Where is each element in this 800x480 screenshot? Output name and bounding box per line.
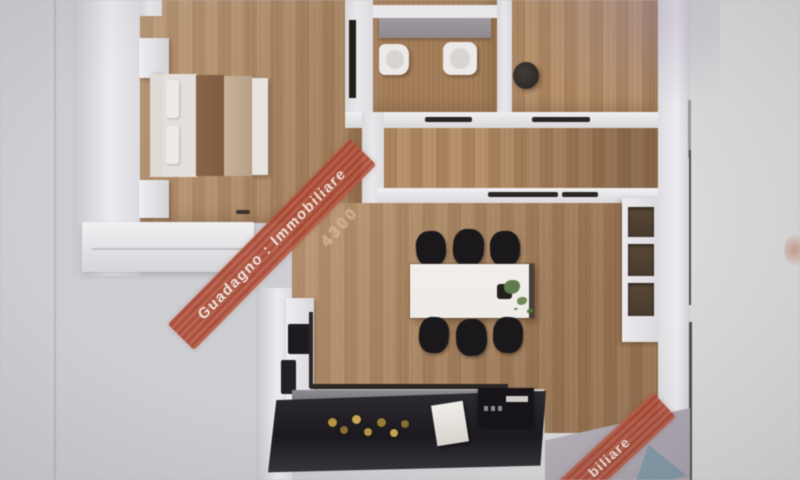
toilet-seat xyxy=(386,50,404,69)
top-right-room-floor xyxy=(512,0,658,113)
bed-headboard xyxy=(150,74,163,177)
bedroom-top-wall xyxy=(140,0,162,16)
corridor-top-wall xyxy=(345,112,676,128)
dining-chair xyxy=(415,230,447,267)
bottle xyxy=(352,415,361,424)
bidet-basin xyxy=(450,48,470,69)
nightstand-top xyxy=(139,38,169,78)
sliding-door-slit-1 xyxy=(425,117,472,122)
bottle xyxy=(364,428,372,436)
shelf-niche xyxy=(628,244,654,276)
dining-chair xyxy=(455,318,488,357)
nightstand-bottom xyxy=(139,180,169,218)
bed-footboard xyxy=(252,78,268,175)
bedroom-door-panel xyxy=(349,20,356,98)
bed-pillow-bottom xyxy=(166,126,179,164)
dining-chair xyxy=(492,316,523,353)
dining-chair xyxy=(489,230,520,266)
bedroom-small-object xyxy=(236,210,250,214)
floor-edge-vertical xyxy=(309,312,313,388)
photo-edge-line-mid xyxy=(689,150,691,305)
cooktop-grill xyxy=(506,396,528,402)
bathroom-right-wall xyxy=(497,0,512,113)
shelf-niche xyxy=(628,283,654,316)
paper-crease-line xyxy=(54,0,56,480)
cutting-board xyxy=(431,401,469,447)
bottle xyxy=(401,420,409,428)
bathroom-top-wall xyxy=(373,5,497,18)
corridor-shadow xyxy=(384,128,658,189)
sliding-door-slit-4 xyxy=(562,192,598,197)
island-hob xyxy=(281,360,296,394)
dining-table-rim xyxy=(529,264,534,318)
dining-chair xyxy=(418,316,450,354)
finger-smudge xyxy=(784,234,800,266)
cooktop-knobs xyxy=(484,406,502,411)
bottle xyxy=(340,426,348,434)
dining-chair xyxy=(452,228,485,267)
sliding-door-slit-2 xyxy=(532,117,590,122)
bed-blanket-fold xyxy=(224,76,252,176)
bottle xyxy=(328,418,337,427)
bed-duvet xyxy=(196,75,224,176)
bottle xyxy=(390,429,398,437)
bed-pillow-top xyxy=(166,80,179,118)
sliding-door-slit-3 xyxy=(488,192,558,197)
terrace-step-edge xyxy=(92,248,252,250)
bathroom-vanity xyxy=(379,18,491,38)
floor-plan-photo: Guadagno : Immobiliare 4300 biliare xyxy=(0,0,800,480)
stool xyxy=(513,62,539,89)
bottle xyxy=(377,418,386,427)
shelf-niche xyxy=(628,207,654,237)
